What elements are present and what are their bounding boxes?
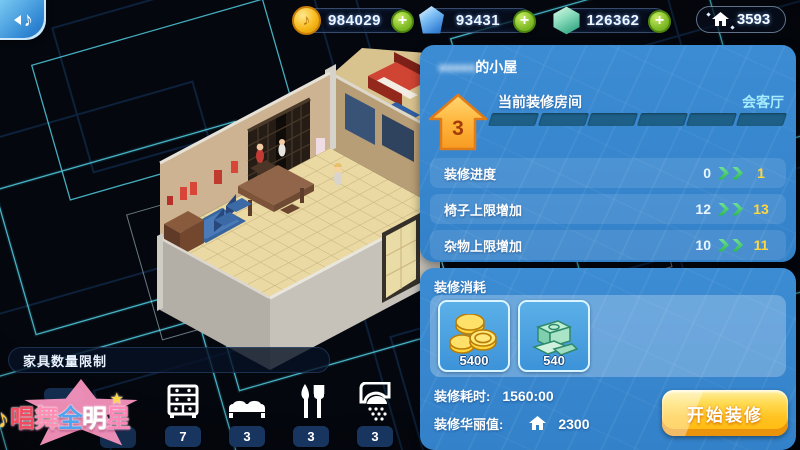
- gold-coin-icon: ♪: [292, 6, 321, 35]
- stat-row-progress: 装修进度 01: [430, 158, 786, 188]
- start-decoration-button[interactable]: 开始装修: [662, 390, 788, 436]
- house-info-panel: ●●●●●的小屋 3 当前装修房间 会客厅 装修进度 01 椅子上限增加 121…: [420, 45, 796, 262]
- time-value: 1560:00: [502, 388, 553, 404]
- decoration-glam-line: 装修华丽值: 2300: [434, 414, 590, 433]
- decoration-progress-bar: [490, 113, 784, 126]
- stat-label: 杂物上限增加: [444, 236, 522, 255]
- add-note-button[interactable]: +: [648, 10, 671, 33]
- chevron-right-icon: [718, 203, 729, 216]
- add-gold-button[interactable]: +: [391, 10, 414, 33]
- stat-row-chairs: 椅子上限增加 1213: [430, 194, 786, 224]
- current-room-label: 当前装修房间: [498, 92, 582, 112]
- house-icon: [529, 416, 546, 431]
- cost-card-gold: 5400: [438, 300, 510, 372]
- owner-suffix: 的小屋: [475, 59, 517, 75]
- dresser-count: 7: [165, 426, 201, 447]
- owner-title: ●●●●●的小屋: [438, 57, 517, 77]
- time-label: 装修耗时:: [434, 386, 490, 405]
- cost-strip: 5400 540: [430, 295, 786, 377]
- gold-coins-icon: [448, 314, 500, 358]
- furniture-limit-shower: 3: [348, 382, 402, 447]
- room-scene[interactable]: [130, 48, 460, 378]
- notes-cost-amount: 540: [520, 353, 588, 368]
- room-level-number: 3: [428, 117, 488, 141]
- room-level-badge: 3: [428, 93, 488, 151]
- furniture-limit-utensils: 3: [284, 382, 338, 447]
- bed-count: 3: [229, 426, 265, 447]
- sparkle-icon: [730, 25, 734, 29]
- room-name: 会客厅: [742, 92, 784, 112]
- sparkle-icon: [706, 12, 710, 16]
- glam-value: 2300: [558, 416, 589, 432]
- music-note-icon: ♪: [21, 8, 34, 32]
- gold-cost-amount: 5400: [440, 353, 508, 368]
- decoration-cost-panel: 装修消耗 5400: [420, 268, 796, 450]
- stat-label: 椅子上限增加: [444, 200, 522, 219]
- chevron-right-icon: [718, 167, 729, 180]
- shower-icon: [355, 382, 395, 422]
- decoration-time-line: 装修耗时: 1560:00: [434, 386, 554, 405]
- gold-currency-pill[interactable]: ♪ 984029 +: [298, 8, 411, 33]
- chevron-right-icon: [718, 239, 729, 252]
- dresser-icon: [163, 382, 203, 422]
- stat-to: 11: [750, 237, 772, 253]
- house-glam-value: 3593: [737, 11, 770, 28]
- house-glam-counter[interactable]: 3593: [696, 6, 786, 33]
- game-screen: ♪ ♪ 984029 + 93431 + 126362 + 3593 ●●●●●…: [0, 0, 800, 450]
- cost-title: 装修消耗: [434, 277, 486, 296]
- note-currency-pill[interactable]: 126362 +: [558, 8, 668, 33]
- logo-text: 唱舞全明星: [10, 399, 130, 435]
- chevron-right-icon: [732, 203, 743, 216]
- stat-from: 12: [689, 201, 711, 217]
- stat-row-misc: 杂物上限增加 1011: [430, 230, 786, 260]
- chevron-right-icon: [732, 167, 743, 180]
- gem-currency-pill[interactable]: 93431 +: [423, 8, 533, 33]
- furniture-limit-bed: 3: [220, 382, 274, 447]
- game-logo: ♪ ★ 唱舞全明星: [0, 381, 146, 449]
- stat-label: 装修进度: [444, 164, 496, 183]
- furniture-limit-dresser: 7: [156, 382, 210, 447]
- back-button[interactable]: ♪: [0, 0, 46, 40]
- owner-name-censored: ●●●●●: [438, 59, 475, 75]
- cost-card-notes: 540: [518, 300, 590, 372]
- chevron-right-icon: [732, 239, 743, 252]
- furniture-limit-bar: 家具数量限制: [8, 347, 330, 373]
- bed-icon: [225, 382, 269, 422]
- stat-from: 10: [689, 237, 711, 253]
- back-arrow-icon: [14, 15, 21, 25]
- house-icon: [712, 12, 729, 27]
- stat-to: 13: [750, 201, 772, 217]
- utensils-icon: [291, 382, 331, 422]
- stat-from: 0: [689, 165, 711, 181]
- shower-count: 3: [357, 426, 393, 447]
- glam-label: 装修华丽值:: [434, 414, 503, 433]
- add-gem-button[interactable]: +: [513, 10, 536, 33]
- furniture-limit-title: 家具数量限制: [23, 351, 107, 370]
- utensils-count: 3: [293, 426, 329, 447]
- stat-to: 1: [750, 165, 772, 181]
